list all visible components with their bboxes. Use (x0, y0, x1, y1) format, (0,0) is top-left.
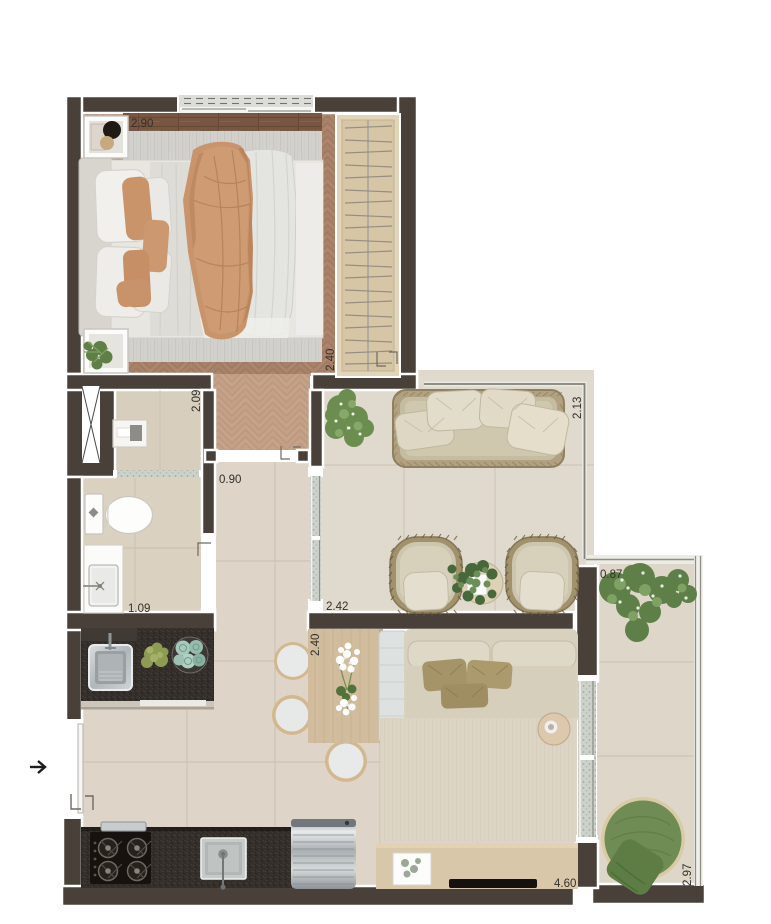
svg-text:2.13: 2.13 (572, 397, 584, 419)
svg-text:2.40: 2.40 (325, 349, 337, 371)
svg-text:0.90: 0.90 (219, 474, 241, 486)
svg-text:1.09: 1.09 (128, 603, 150, 615)
svg-text:2.90: 2.90 (131, 118, 153, 130)
svg-text:2.42: 2.42 (326, 601, 348, 613)
svg-text:0.87: 0.87 (600, 569, 622, 581)
svg-text:2.09: 2.09 (191, 390, 203, 412)
svg-text:4.60: 4.60 (554, 878, 576, 890)
svg-text:2.40: 2.40 (310, 634, 322, 656)
svg-text:2.97: 2.97 (682, 864, 694, 886)
